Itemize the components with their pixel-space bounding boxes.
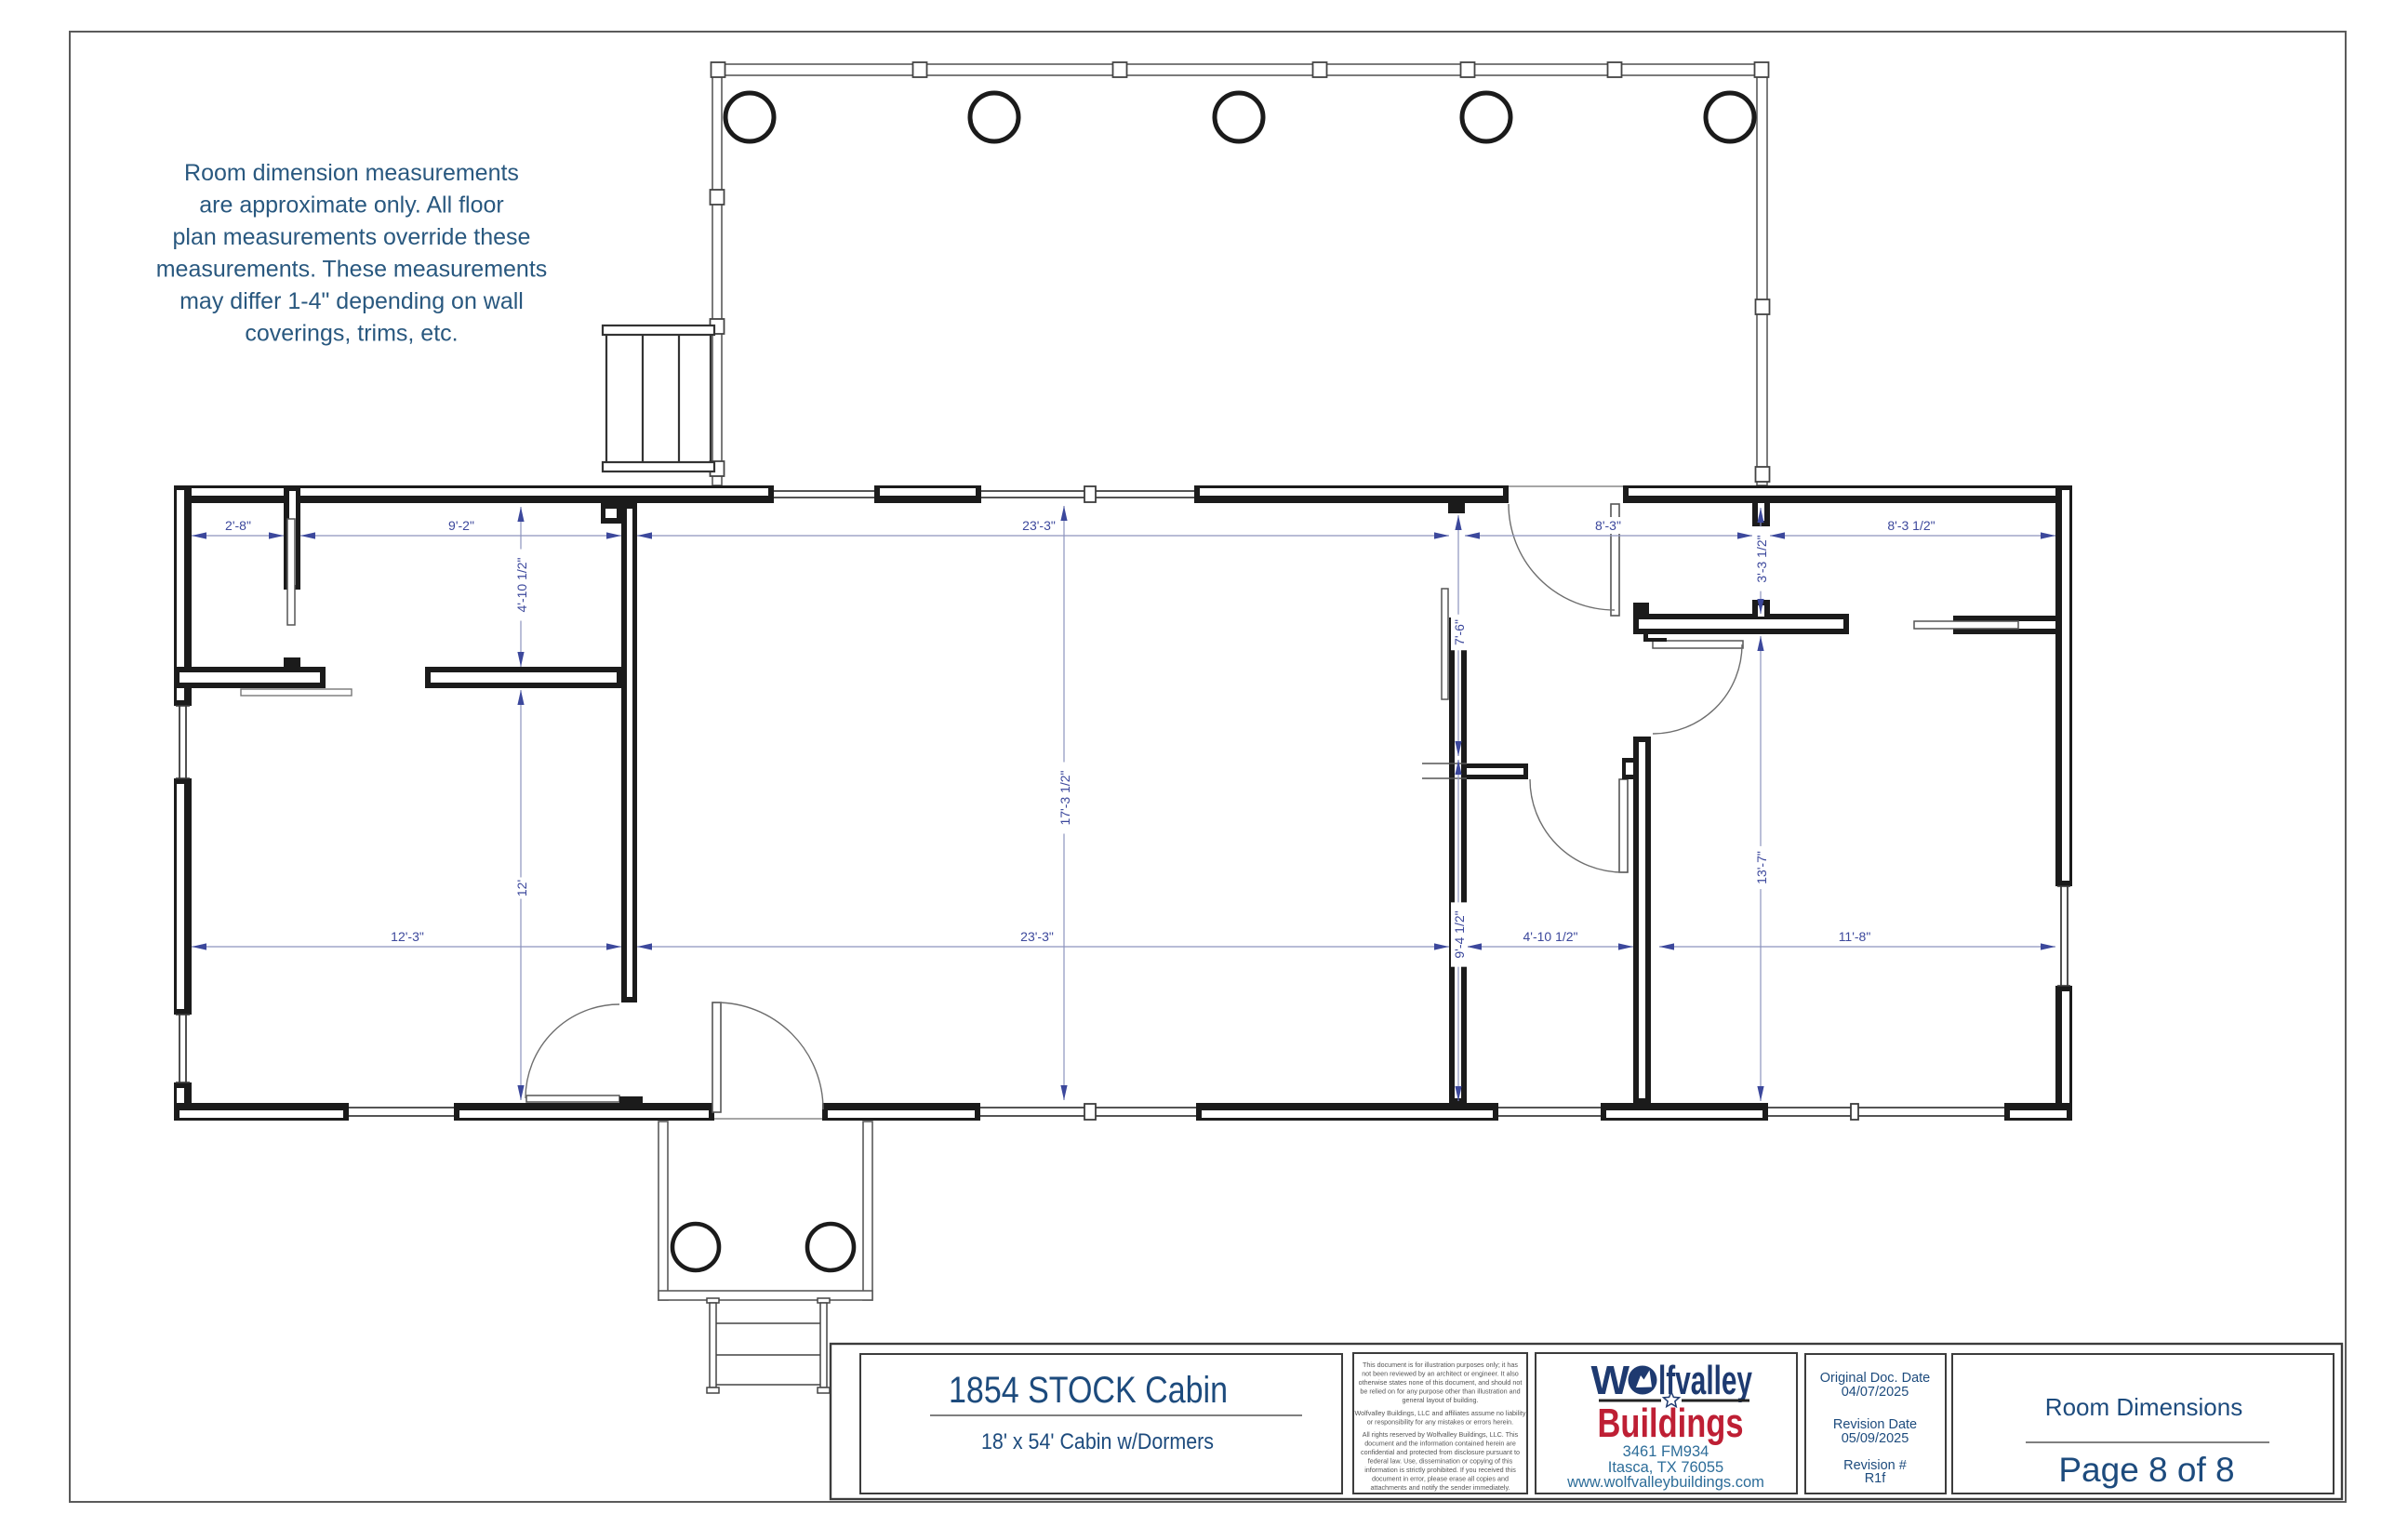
svg-text:may differ 1-4" depending on w: may differ 1-4" depending on wall xyxy=(180,288,524,314)
svg-text:federal law. Use, disseminatio: federal law. Use, dissemination or copyi… xyxy=(1368,1457,1513,1466)
svg-text:are approximate only. All floo: are approximate only. All floor xyxy=(199,192,503,219)
svg-text:measurements. These measuremen: measurements. These measurements xyxy=(156,257,548,283)
svg-text:This document is for illustrat: This document is for illustration purpos… xyxy=(1363,1361,1518,1369)
svg-text:be relied on for any purpose o: be relied on for any purpose other than … xyxy=(1360,1387,1520,1396)
svg-text:information is strictly prohib: information is strictly prohibited. If y… xyxy=(1364,1466,1516,1474)
svg-text:12'-3": 12'-3" xyxy=(391,929,424,944)
svg-text:otherwise states none of this: otherwise states none of this document, … xyxy=(1359,1378,1523,1387)
svg-text:Wolfvalley Buildings, LLC and: Wolfvalley Buildings, LLC and affiliates… xyxy=(1355,1409,1526,1417)
svg-text:confidential and protected fro: confidential and protected from disclosu… xyxy=(1361,1448,1520,1456)
svg-text:04/07/2025: 04/07/2025 xyxy=(1842,1385,1909,1400)
svg-text:9'-4 1/2": 9'-4 1/2" xyxy=(1452,910,1467,958)
svg-text:Buildings: Buildings xyxy=(1598,1401,1744,1446)
svg-text:R1f: R1f xyxy=(1865,1471,1887,1486)
svg-text:coverings, trims, etc.: coverings, trims, etc. xyxy=(245,321,458,347)
svg-text:W: W xyxy=(1590,1358,1629,1403)
svg-text:7'-6": 7'-6" xyxy=(1452,619,1467,645)
svg-text:Original Doc. Date: Original Doc. Date xyxy=(1820,1371,1930,1386)
svg-text:1854 STOCK Cabin: 1854 STOCK Cabin xyxy=(949,1370,1228,1411)
svg-text:3'-3 1/2": 3'-3 1/2" xyxy=(1754,535,1769,582)
svg-text:document and the information c: document and the information contained h… xyxy=(1364,1440,1516,1448)
svg-text:12': 12' xyxy=(514,880,529,896)
svg-text:Revision Date: Revision Date xyxy=(1833,1417,1917,1432)
svg-text:Page 8 of 8: Page 8 of 8 xyxy=(2058,1451,2234,1489)
svg-text:document in error, please eras: document in error, please erase all copi… xyxy=(1372,1475,1509,1483)
svg-text:All rights reserved by Wolfval: All rights reserved by Wolfvalley Buildi… xyxy=(1363,1430,1519,1439)
svg-text:3461 FM934: 3461 FM934 xyxy=(1623,1443,1709,1460)
svg-text:8'-3": 8'-3" xyxy=(1595,518,1621,533)
svg-text:18' x 54' Cabin w/Dormers: 18' x 54' Cabin w/Dormers xyxy=(981,1429,1214,1454)
svg-text:23'-3": 23'-3" xyxy=(1020,929,1054,944)
svg-text:17'-3 1/2": 17'-3 1/2" xyxy=(1057,770,1072,825)
svg-text:9'-2": 9'-2" xyxy=(448,518,474,533)
svg-text:4'-10 1/2": 4'-10 1/2" xyxy=(514,557,529,612)
svg-text:attachments and notify the sen: attachments and notify the sender immedi… xyxy=(1370,1483,1510,1492)
svg-text:05/09/2025: 05/09/2025 xyxy=(1842,1431,1909,1446)
svg-text:Room dimension measurements: Room dimension measurements xyxy=(184,160,519,186)
svg-text:www.wolfvalleybuildings.com: www.wolfvalleybuildings.com xyxy=(1566,1474,1764,1491)
svg-text:not been reviewed by an archit: not been reviewed by an architect or eng… xyxy=(1362,1370,1519,1378)
svg-text:general layout of building.: general layout of building. xyxy=(1403,1396,1479,1404)
svg-text:13'-7": 13'-7" xyxy=(1754,851,1769,884)
svg-text:23'-3": 23'-3" xyxy=(1022,518,1056,533)
svg-text:Room Dimensions: Room Dimensions xyxy=(2045,1393,2242,1421)
svg-text:or responsibility for any mist: or responsibility for any mistakes or er… xyxy=(1367,1418,1513,1427)
svg-text:8'-3 1/2": 8'-3 1/2" xyxy=(1887,518,1935,533)
svg-text:4'-10 1/2": 4'-10 1/2" xyxy=(1523,929,1577,944)
svg-text:plan measurements override the: plan measurements override these xyxy=(173,224,531,250)
svg-text:2'-8": 2'-8" xyxy=(225,518,251,533)
svg-text:11'-8": 11'-8" xyxy=(1839,929,1871,944)
